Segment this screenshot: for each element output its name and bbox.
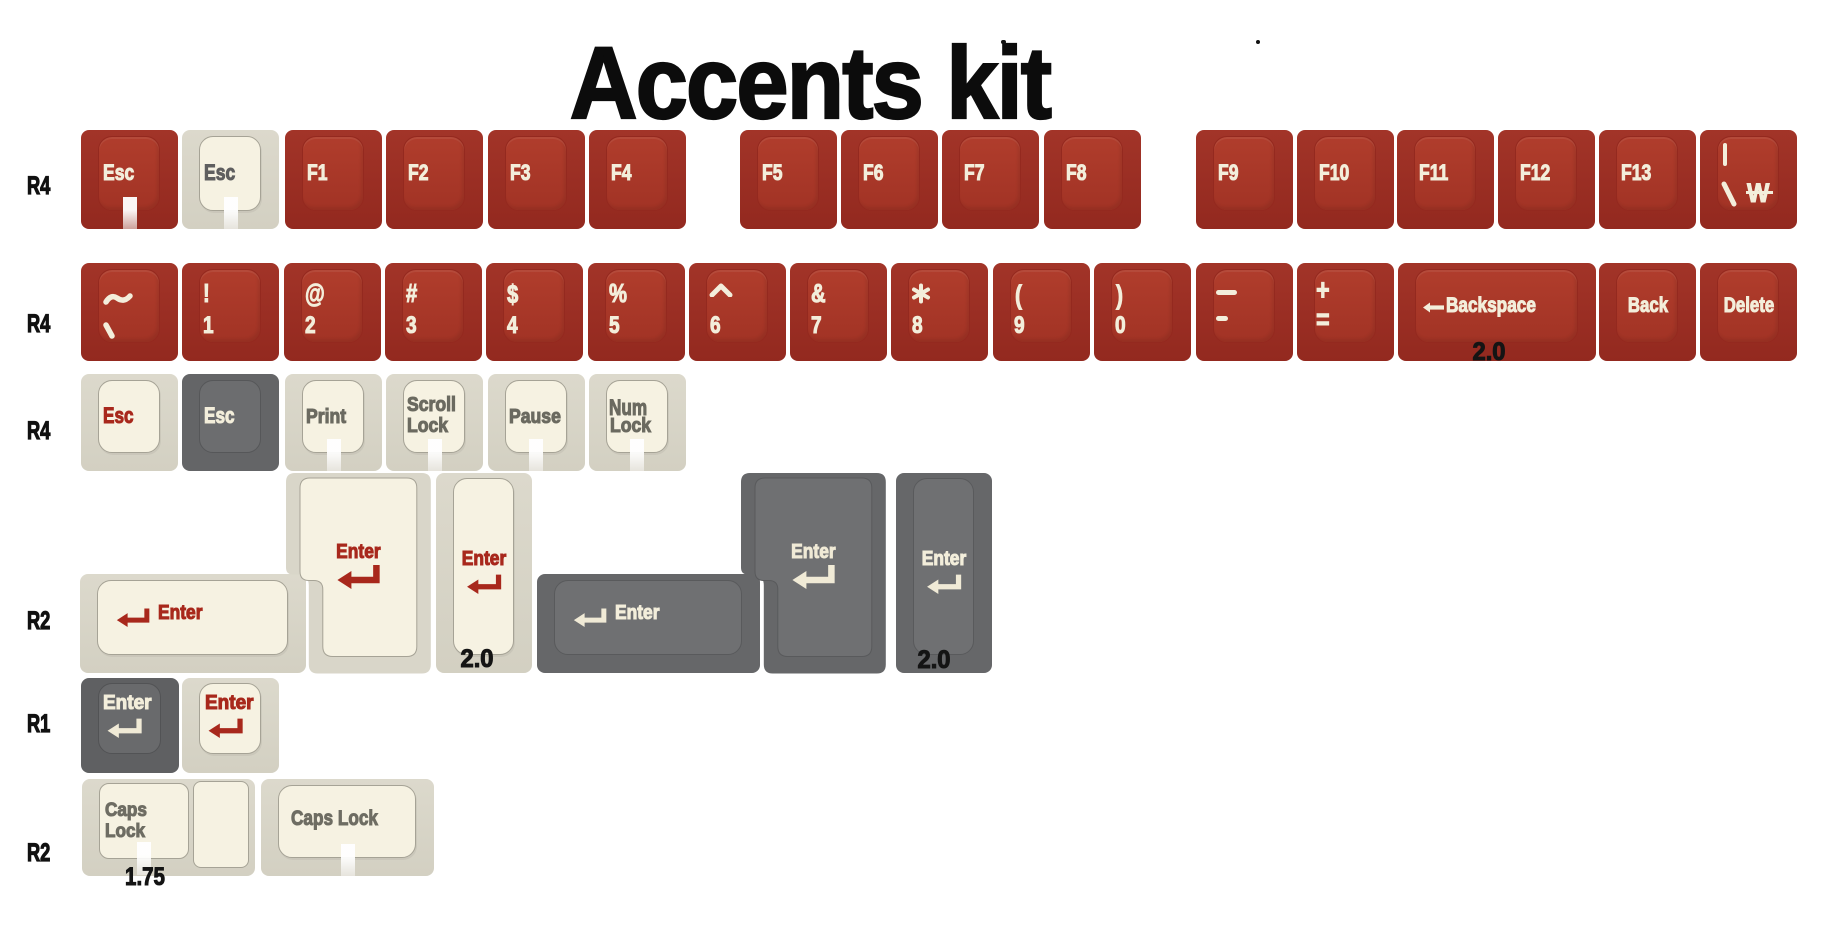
svg-text:Enter: Enter [336,539,380,561]
svg-text:Enter: Enter [791,539,835,561]
